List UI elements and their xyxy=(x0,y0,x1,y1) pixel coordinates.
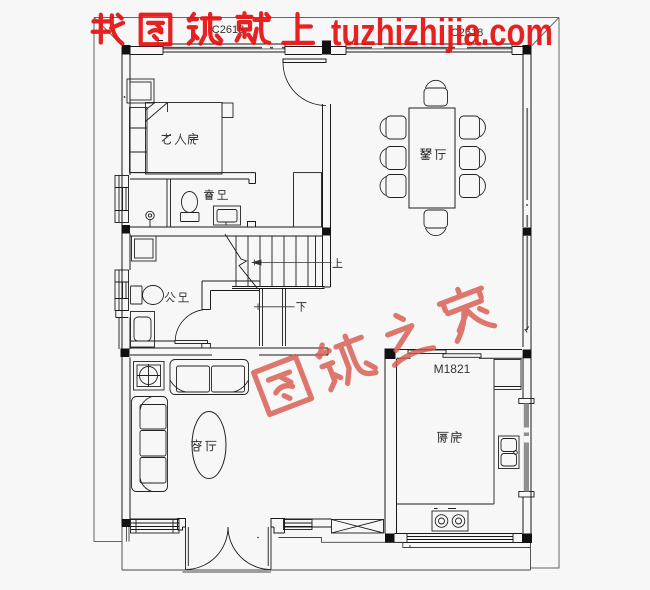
svg-text:M1821: M1821 xyxy=(434,362,471,376)
svg-text:tuzhizhijia.com: tuzhizhijia.com xyxy=(331,12,553,54)
